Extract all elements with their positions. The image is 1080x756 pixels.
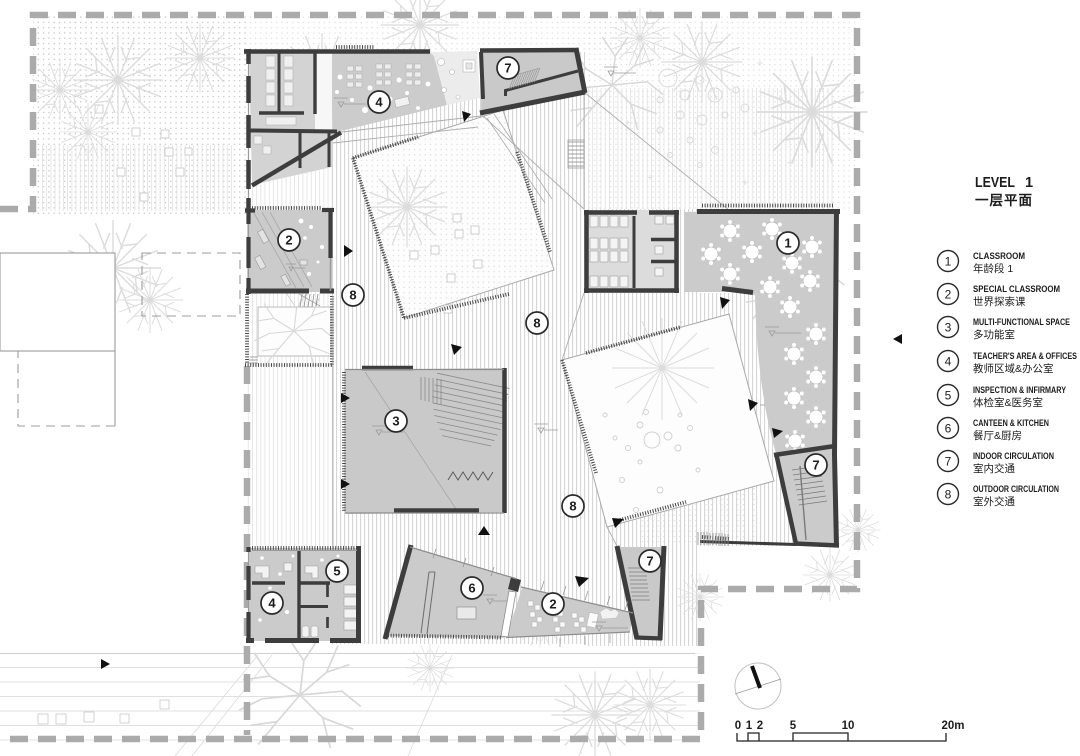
- svg-text:INDOOR CIRCULATION: INDOOR CIRCULATION: [973, 451, 1054, 462]
- svg-text:室内交通: 室内交通: [973, 462, 1015, 475]
- svg-text:20m: 20m: [941, 720, 964, 732]
- svg-text:多功能室: 多功能室: [973, 328, 1015, 341]
- svg-text:世界探索课: 世界探索课: [973, 295, 1026, 308]
- svg-text:教师区域&办公室: 教师区域&办公室: [973, 362, 1054, 375]
- svg-text:5: 5: [790, 720, 797, 732]
- svg-text:1: 1: [784, 236, 791, 251]
- svg-text:0: 0: [735, 720, 741, 732]
- svg-text:7: 7: [646, 554, 653, 569]
- svg-text:7: 7: [812, 458, 819, 473]
- svg-text:8: 8: [349, 288, 356, 303]
- svg-text:4: 4: [268, 596, 276, 611]
- svg-text:1: 1: [746, 720, 753, 732]
- svg-text:7: 7: [945, 455, 952, 469]
- svg-text:CANTEEN & KITCHEN: CANTEEN & KITCHEN: [973, 418, 1049, 429]
- svg-text:SPECIAL CLASSROOM: SPECIAL CLASSROOM: [973, 284, 1060, 295]
- svg-text:年龄段 1: 年龄段 1: [973, 262, 1013, 275]
- svg-text:3: 3: [392, 414, 399, 429]
- svg-text:LEVEL: LEVEL: [975, 175, 1015, 191]
- svg-text:TEACHER'S AREA & OFFICES: TEACHER'S AREA & OFFICES: [973, 351, 1077, 362]
- svg-text:7: 7: [504, 61, 511, 76]
- svg-text:4: 4: [375, 95, 383, 110]
- svg-text:2: 2: [945, 288, 952, 302]
- svg-text:8: 8: [569, 499, 576, 514]
- svg-text:一层平面: 一层平面: [975, 193, 1033, 208]
- svg-text:餐厅&厨房: 餐厅&厨房: [973, 429, 1022, 442]
- svg-text:室外交通: 室外交通: [973, 495, 1015, 508]
- svg-text:5: 5: [333, 564, 340, 579]
- svg-text:体检室&医务室: 体检室&医务室: [973, 396, 1043, 409]
- svg-text:6: 6: [468, 581, 475, 596]
- svg-text:4: 4: [945, 355, 952, 369]
- svg-text:3: 3: [945, 321, 952, 335]
- svg-text:CLASSROOM: CLASSROOM: [973, 251, 1025, 262]
- svg-text:1: 1: [945, 255, 952, 269]
- svg-text:1: 1: [1025, 175, 1033, 191]
- svg-text:5: 5: [945, 389, 952, 403]
- svg-text:OUTDOOR CIRCULATION: OUTDOOR CIRCULATION: [973, 484, 1059, 495]
- svg-text:INSPECTION & INFIRMARY: INSPECTION & INFIRMARY: [973, 385, 1067, 396]
- svg-text:6: 6: [945, 422, 952, 436]
- svg-text:8: 8: [533, 316, 540, 331]
- svg-text:2: 2: [549, 597, 556, 612]
- svg-text:2: 2: [757, 720, 763, 732]
- svg-text:10: 10: [842, 720, 855, 732]
- svg-text:MULTI-FUNCTIONAL SPACE: MULTI-FUNCTIONAL SPACE: [973, 317, 1070, 328]
- svg-text:8: 8: [945, 488, 952, 502]
- svg-text:2: 2: [285, 233, 292, 248]
